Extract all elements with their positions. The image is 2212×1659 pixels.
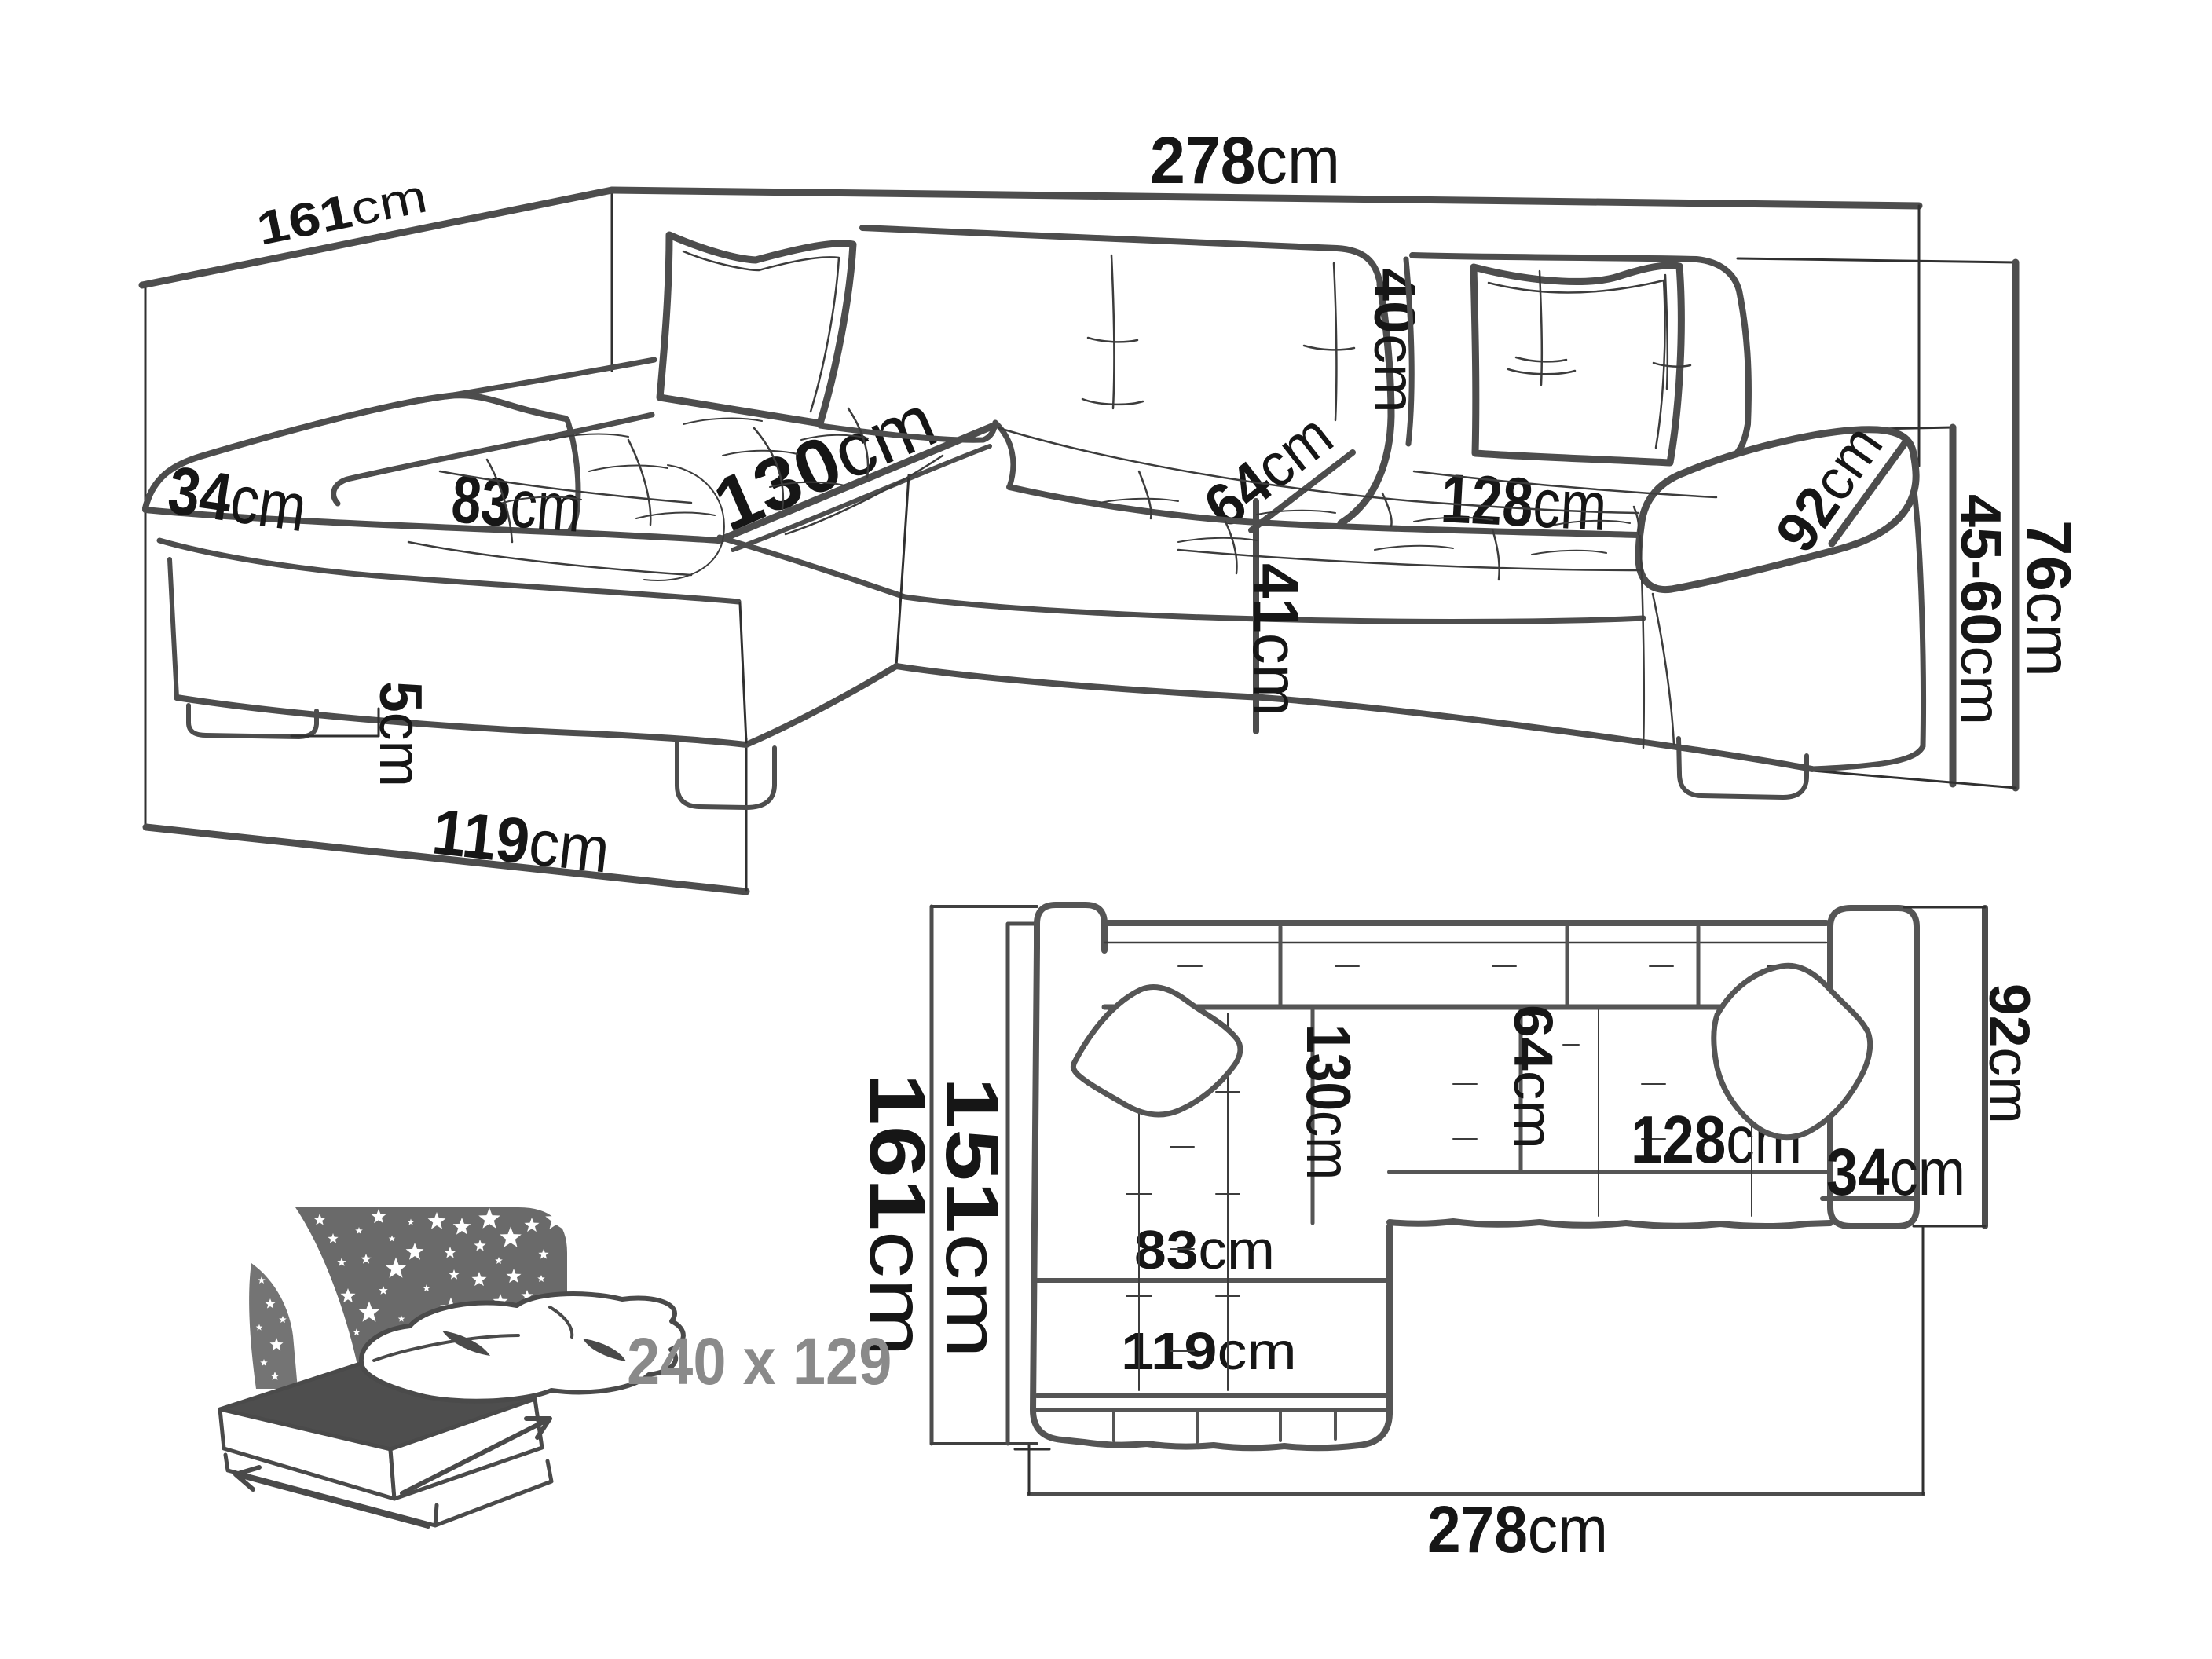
svg-text:5cm: 5cm <box>368 681 435 787</box>
svg-text:161cm: 161cm <box>853 1073 940 1357</box>
svg-text:41cm: 41cm <box>1240 563 1311 716</box>
svg-text:240 x 129: 240 x 129 <box>627 1324 892 1397</box>
svg-text:64cm: 64cm <box>1503 1005 1564 1149</box>
svg-text:34cm: 34cm <box>1826 1135 1965 1209</box>
svg-text:83cm: 83cm <box>1134 1219 1275 1280</box>
svg-text:40cm: 40cm <box>1362 268 1427 413</box>
svg-text:278cm: 278cm <box>1150 124 1340 198</box>
svg-text:92cm: 92cm <box>1977 983 2041 1124</box>
svg-text:119cm: 119cm <box>1121 1322 1297 1381</box>
svg-text:83cm: 83cm <box>449 461 584 546</box>
svg-text:45-60cm: 45-60cm <box>1949 494 2012 725</box>
svg-text:151cm: 151cm <box>931 1077 1015 1358</box>
svg-text:130cm: 130cm <box>1294 1024 1364 1180</box>
svg-text:128cm: 128cm <box>1439 460 1609 545</box>
svg-text:76cm: 76cm <box>2013 520 2083 677</box>
svg-text:278cm: 278cm <box>1427 1493 1608 1567</box>
